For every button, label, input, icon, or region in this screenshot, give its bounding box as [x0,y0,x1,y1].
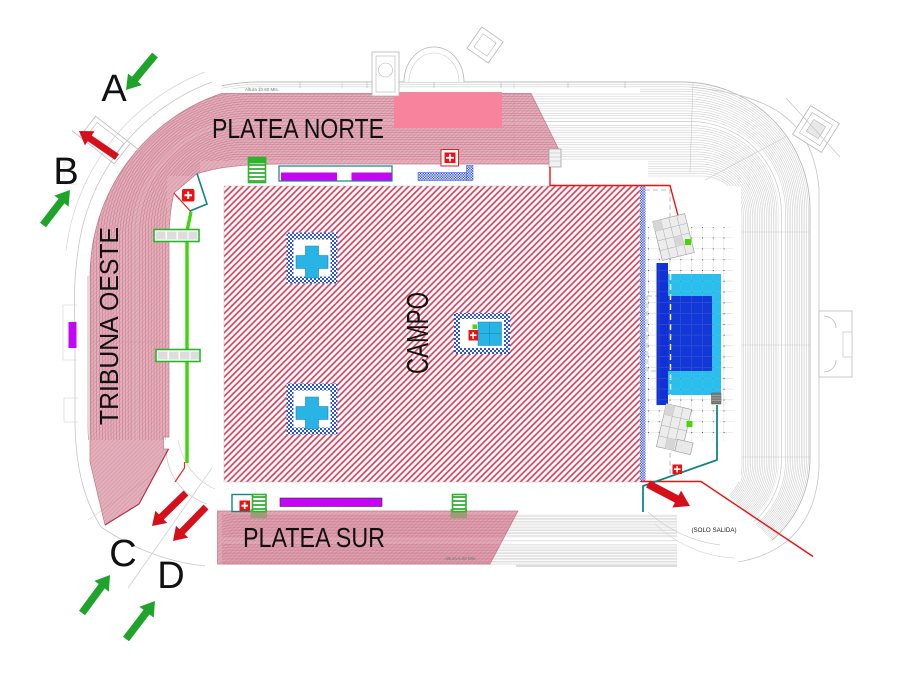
svg-text:PLATEA SUR: PLATEA SUR [243,522,385,553]
svg-text:D: D [157,555,184,597]
svg-text:A: A [101,68,127,110]
svg-text:TRIBUNA OESTE: TRIBUNA OESTE [94,227,124,425]
svg-text:altura 5.08 Mts.: altura 5.08 Mts. [445,556,476,561]
svg-text:C: C [109,533,136,575]
svg-text:CAMPO: CAMPO [400,292,435,374]
svg-text:B: B [53,151,78,193]
svg-text:(SOLO SALIDA): (SOLO SALIDA) [691,527,736,534]
svg-text:Altura 10.60 Mts.: Altura 10.60 Mts. [245,87,279,92]
svg-text:PLATEA NORTE: PLATEA NORTE [212,113,384,144]
